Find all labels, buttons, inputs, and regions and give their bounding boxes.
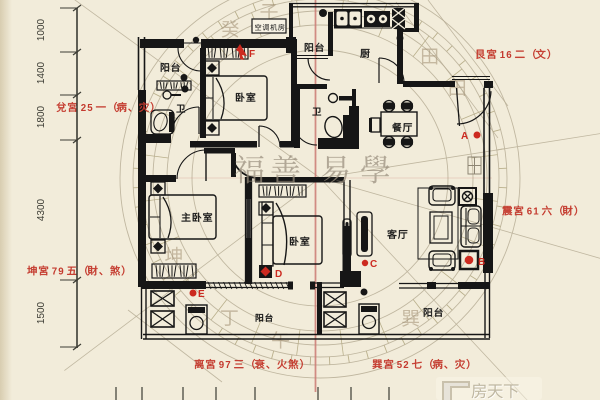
svg-text:D: D xyxy=(275,269,282,280)
svg-text:1800: 1800 xyxy=(36,105,47,128)
svg-text:F: F xyxy=(249,49,255,60)
svg-text:1400: 1400 xyxy=(36,61,47,84)
svg-text:7: 7 xyxy=(225,360,230,371)
svg-text:C: C xyxy=(370,259,377,270)
svg-text:5: 5 xyxy=(87,103,93,114)
svg-text:6: 6 xyxy=(527,207,533,218)
svg-text:9: 9 xyxy=(219,360,225,371)
svg-text:1000: 1000 xyxy=(36,18,47,41)
svg-text:1: 1 xyxy=(500,50,506,61)
svg-text:E: E xyxy=(198,289,205,300)
svg-text:5: 5 xyxy=(397,360,403,371)
svg-text:9: 9 xyxy=(58,267,64,278)
svg-text:7: 7 xyxy=(52,267,57,278)
svg-text:4300: 4300 xyxy=(36,198,47,221)
svg-text:6: 6 xyxy=(506,50,512,61)
svg-text:2: 2 xyxy=(81,103,86,114)
svg-text:B: B xyxy=(478,257,485,268)
svg-text:1500: 1500 xyxy=(36,301,47,324)
svg-text:A: A xyxy=(461,131,468,142)
svg-text:1: 1 xyxy=(533,207,539,218)
svg-text:2: 2 xyxy=(403,360,408,371)
